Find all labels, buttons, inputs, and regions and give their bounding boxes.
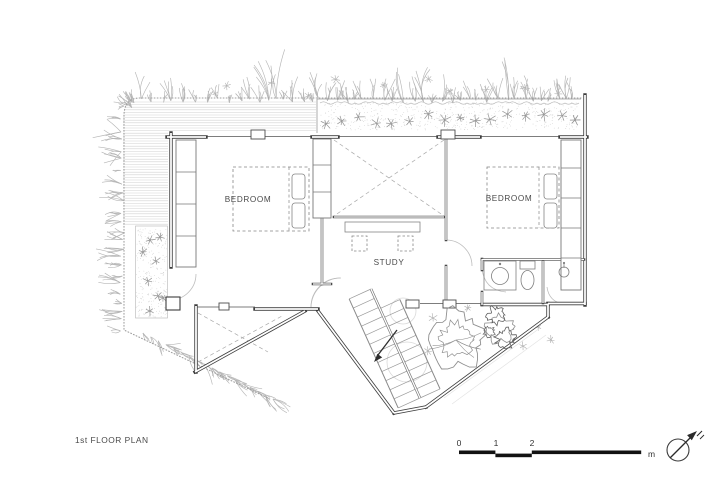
north-arrow-icon: [667, 431, 704, 461]
scale-unit-label: m: [648, 449, 655, 459]
scale-tick-1: 1: [494, 438, 499, 448]
scale-bar-segment-0-1: [459, 451, 495, 455]
floor-plan-page: BEDROOM BEDROOM STUDY 1st FLOOR PLAN 0 1…: [0, 0, 728, 485]
interior-walls: [313, 137, 584, 305]
bedroom-left-label: BEDROOM: [225, 195, 272, 204]
plant-symbols: [139, 73, 581, 355]
scale-tick-0: 0: [457, 438, 462, 448]
window-mullion-markers: [166, 130, 456, 310]
outer-walls: [167, 95, 587, 413]
scale-bar-segment-1-2: [495, 454, 531, 458]
scale-bar-segment-2-5: [532, 451, 641, 455]
bathroom-fixtures: [484, 261, 569, 290]
perimeter-grass-tufts: [93, 49, 574, 414]
ground-hatch-texture: [122, 102, 316, 224]
scale-bar: 0 1 2 m: [457, 438, 655, 459]
floor-plan-drawing: BEDROOM BEDROOM STUDY 1st FLOOR PLAN 0 1…: [0, 0, 728, 485]
planting-bed-stipple: [136, 102, 578, 318]
bedroom-right-label: BEDROOM: [486, 194, 533, 203]
plan-title: 1st FLOOR PLAN: [75, 435, 149, 445]
courtyard-trees: [429, 306, 517, 370]
staircase: [349, 289, 440, 408]
study-label: STUDY: [374, 258, 405, 267]
room-labels: BEDROOM BEDROOM STUDY: [225, 194, 533, 267]
scale-tick-2: 2: [530, 438, 535, 448]
